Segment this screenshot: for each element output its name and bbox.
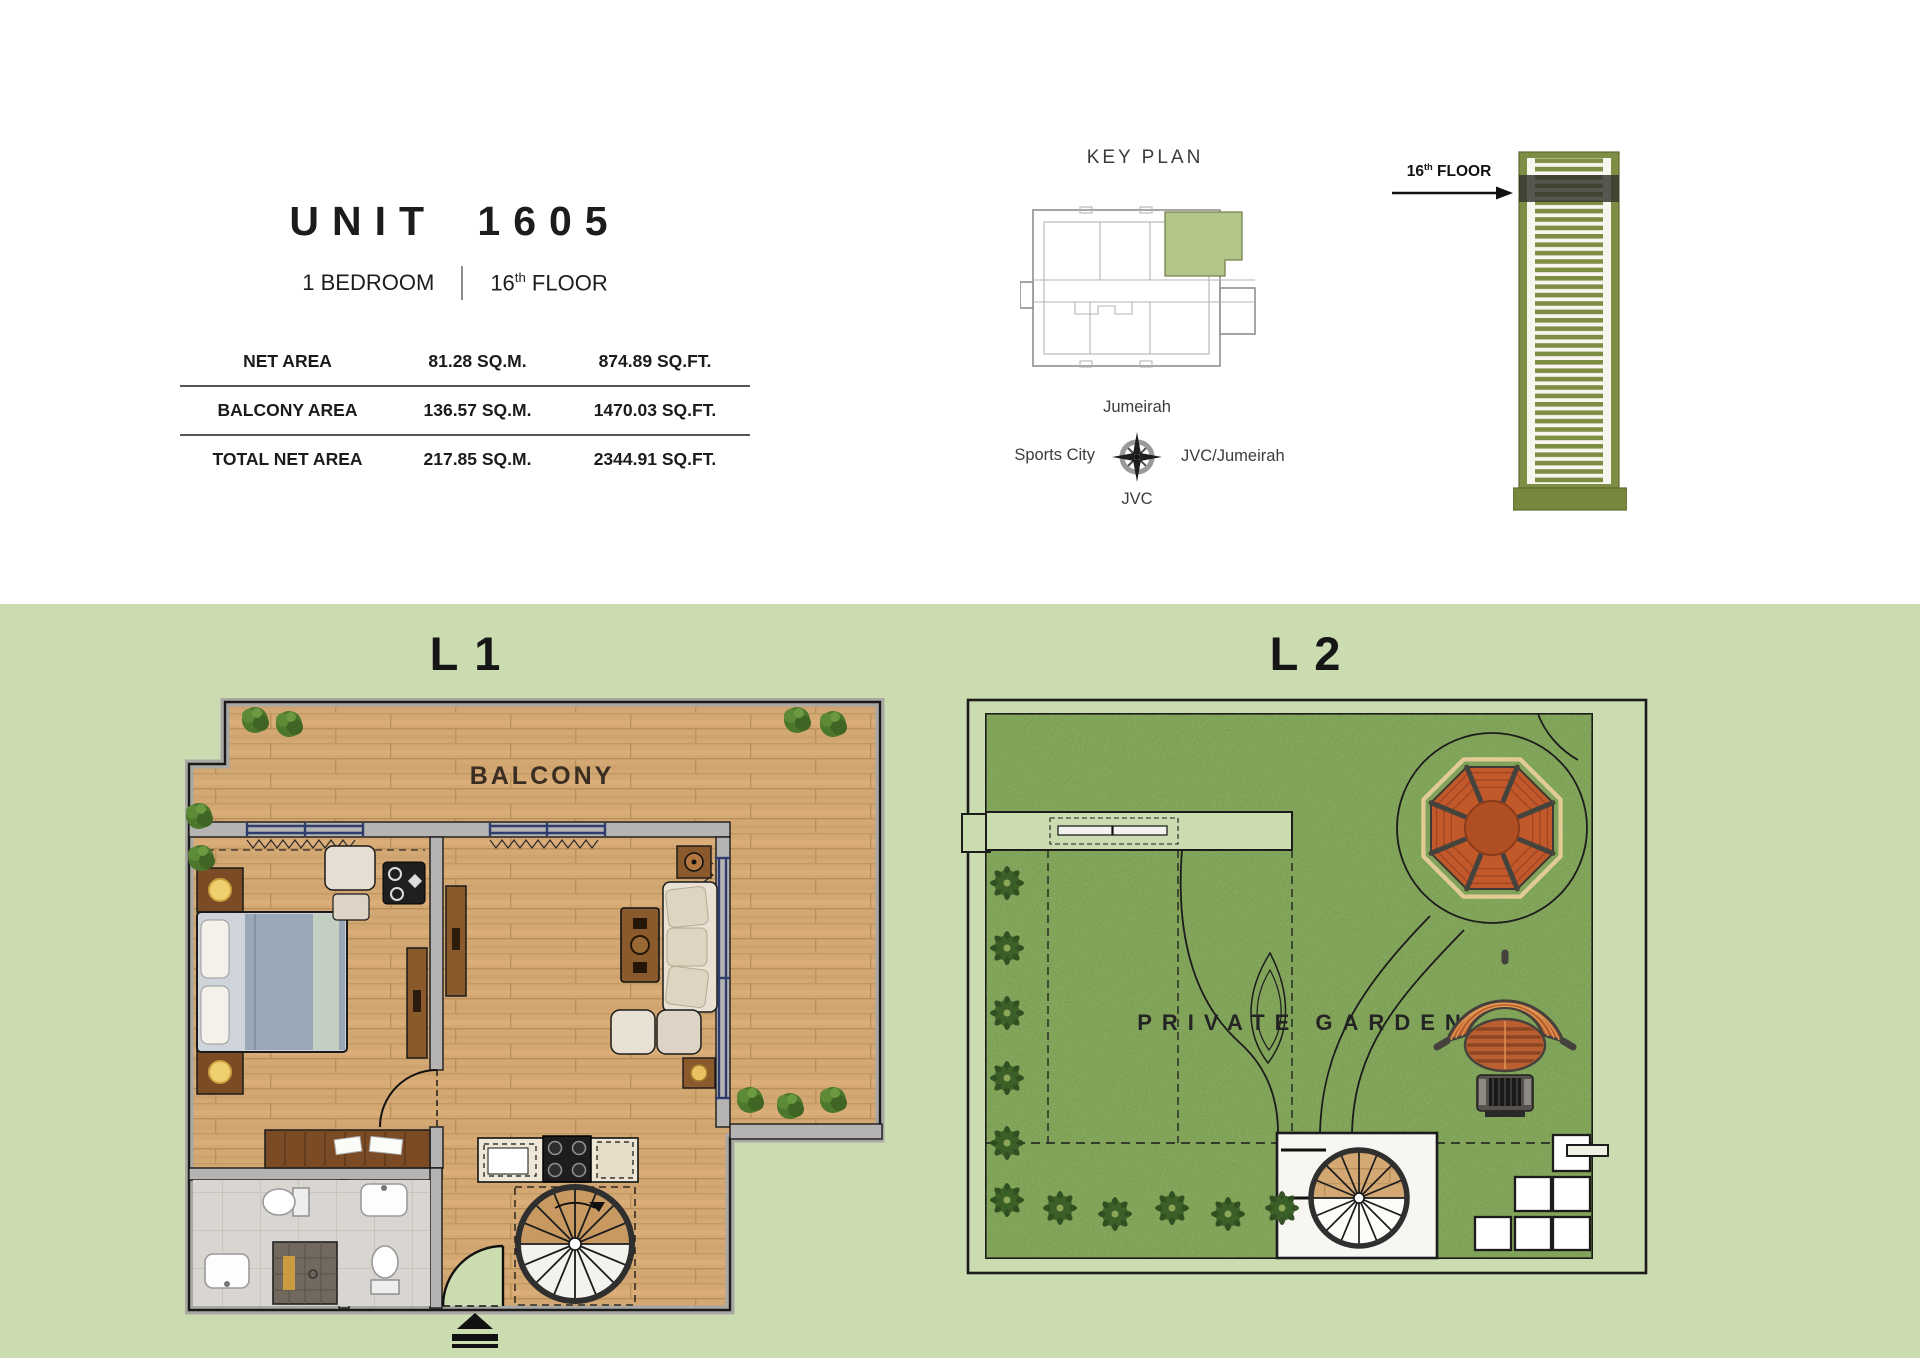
side-unit (383, 862, 425, 904)
row-sqft: 1470.03 SQ.FT. (560, 400, 750, 421)
row-sqft: 874.89 SQ.FT. (560, 351, 750, 372)
keyplan-label-south: JVC (1087, 490, 1187, 509)
row-sqm: 81.28 SQ.M. (395, 351, 560, 372)
tower-base (1513, 488, 1627, 510)
level-l2-title: L2 (1243, 626, 1383, 681)
entrance-arrow-icon (452, 1313, 498, 1348)
l1-floor-plan: BALCONY (185, 698, 885, 1353)
keyplan-label-west: Sports City (950, 446, 1095, 465)
sliding-door (1058, 826, 1112, 835)
tower-16th-floor-band (1519, 175, 1619, 202)
planter-box (1567, 1145, 1608, 1156)
side-table (683, 1058, 715, 1088)
toilet (263, 1188, 309, 1216)
side-table (677, 846, 711, 878)
tower-elevation (1513, 150, 1627, 512)
level-l1-title: L1 (403, 626, 543, 681)
bed (197, 912, 347, 1052)
armchair (657, 1010, 701, 1054)
bbq-grill (1477, 1075, 1533, 1117)
row-label: NET AREA (180, 351, 395, 372)
keyplan-unit-highlight (1165, 212, 1242, 276)
row-label: BALCONY AREA (180, 400, 395, 421)
kitchen (478, 1136, 638, 1182)
sink (361, 1184, 407, 1216)
gazebo (1423, 759, 1560, 896)
stove (543, 1136, 591, 1182)
row-sqft: 2344.91 SQ.FT. (560, 449, 750, 470)
private-garden-label: PRIVATE GARDEN (1137, 1010, 1471, 1035)
row-label: TOTAL NET AREA (180, 449, 395, 470)
l2-garden-plan: PRIVATE GARDEN (960, 698, 1660, 1353)
armchair (325, 846, 375, 890)
floor-label: 16th FLOOR (490, 270, 607, 296)
garden-spiral-staircase (1277, 1133, 1437, 1258)
row-sqm: 217.85 SQ.M. (395, 449, 560, 470)
table-row-net-area: NET AREA 81.28 SQ.M. 874.89 SQ.FT. (180, 338, 750, 385)
toilet (371, 1246, 399, 1294)
table-row-balcony-area: BALCONY AREA 136.57 SQ.M. 1470.03 SQ.FT. (180, 385, 750, 434)
ottoman (333, 894, 369, 920)
armchair (611, 1010, 655, 1054)
terrace-threshold (962, 812, 1292, 852)
coffee-table (621, 908, 659, 982)
keyplan-label-north: Jumeirah (1037, 398, 1237, 417)
tower-floor-label: 16th FLOOR (1391, 162, 1507, 181)
sliding-door (1113, 826, 1167, 835)
floor-arrow-icon (1390, 185, 1514, 201)
row-sqm: 136.57 SQ.M. (395, 400, 560, 421)
table-row-total-net-area: TOTAL NET AREA 217.85 SQ.M. 2344.91 SQ.F… (180, 434, 750, 483)
shower (273, 1242, 337, 1304)
sink (205, 1254, 249, 1288)
unit-subtitle: 1 BEDROOM 16th FLOOR (220, 266, 690, 300)
keyplan-label-east: JVC/Jumeirah (1181, 447, 1351, 466)
balcony-label: BALCONY (470, 762, 615, 790)
keyplan-title: KEY PLAN (1045, 147, 1245, 169)
sofa (663, 882, 717, 1012)
subtitle-divider (461, 266, 463, 300)
bathrooms (193, 1180, 430, 1306)
keyplan-diagram (1020, 196, 1270, 381)
bedroom-count-label: 1 BEDROOM (302, 270, 434, 296)
unit-title: UNIT 1605 (220, 198, 690, 245)
compass-icon (1111, 431, 1163, 483)
area-table: NET AREA 81.28 SQ.M. 874.89 SQ.FT. BALCO… (180, 338, 750, 483)
